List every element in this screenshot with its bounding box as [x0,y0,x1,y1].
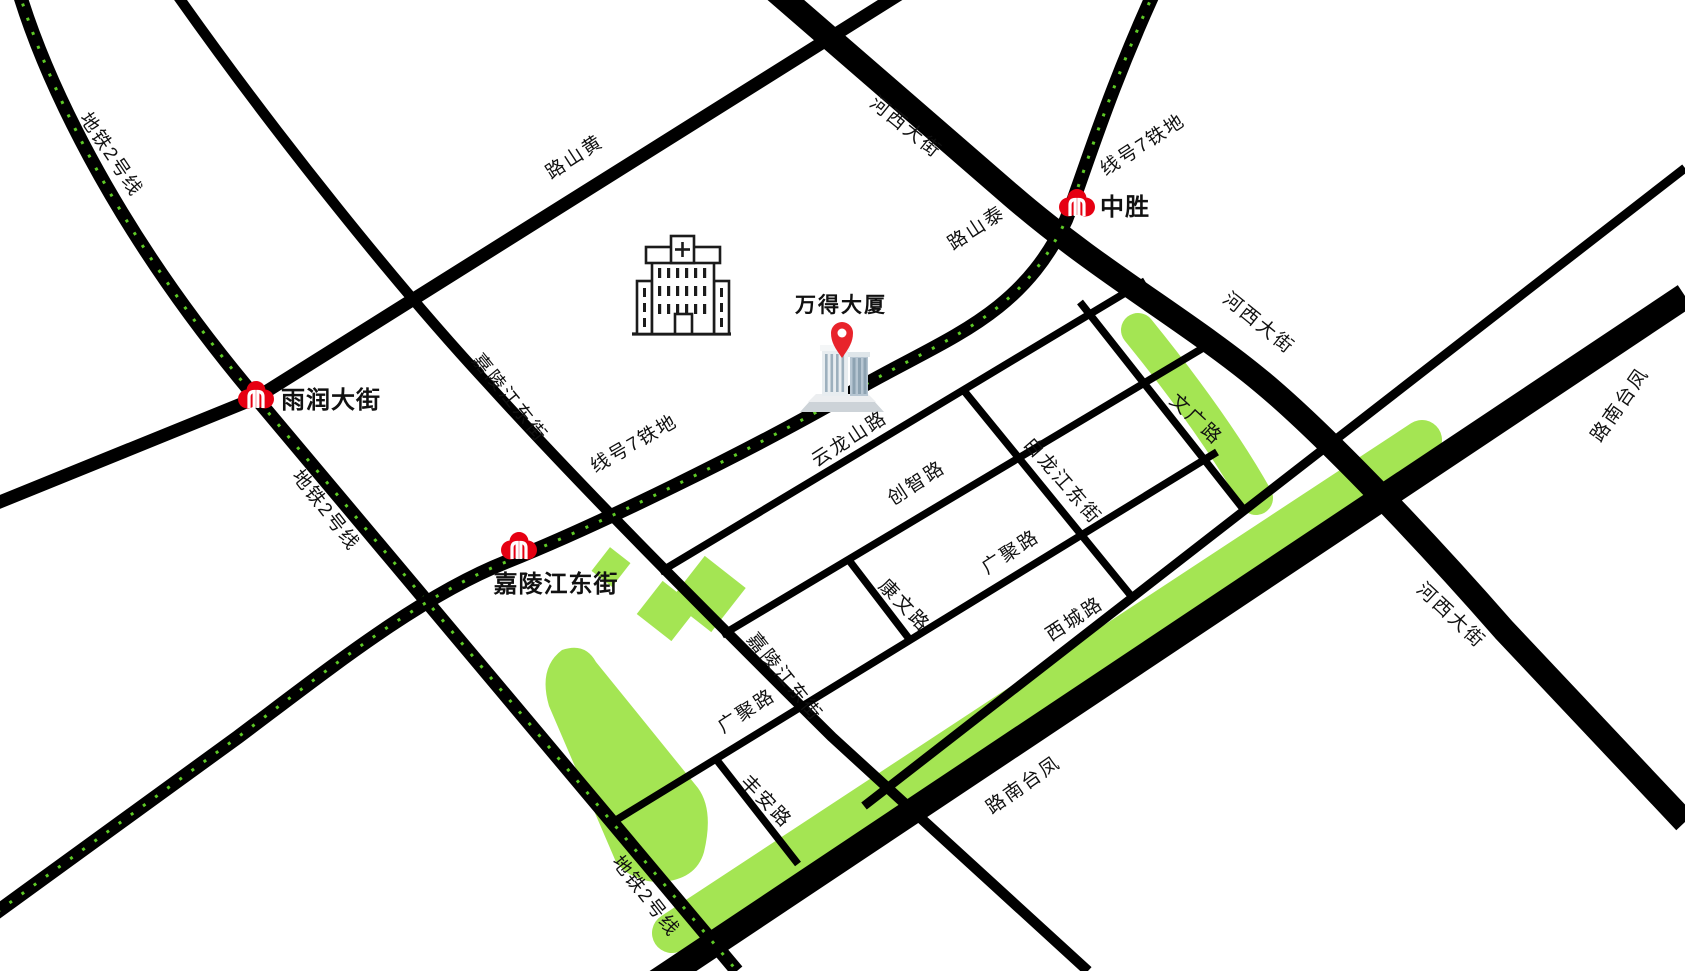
road-label-huangshan: 路山黄 [542,130,608,184]
station-label-zhongsheng: 中胜 [1100,194,1150,221]
station-label-yurun: 雨润大街 [281,386,381,414]
road-label-taishan: 路山泰 [944,201,1010,255]
station-label-jialingjiang: 嘉陵江东街 [494,570,619,598]
road-xicheng [864,168,1685,806]
map-canvas: 万得大厦 中胜 雨润大街 嘉陵江东街 路山黄 路山泰 河西大街 河西大街 河西大… [0,0,1685,971]
road-label-guangju-1: 广聚路 [978,525,1044,579]
station-icon-jialingjiang[interactable] [501,532,537,560]
hospital-icon [632,236,731,334]
metro-label-line7-b: 线号7铁地 [587,410,682,477]
station-icon-zhongsheng[interactable] [1059,189,1095,217]
landmark-label: 万得大厦 [794,293,887,317]
metro-label-line7-a: 线号7铁地 [1096,109,1189,180]
road-label-jialingjiang-1: 嘉陵江东街 [467,350,552,447]
location-map: 万得大厦 中胜 雨润大街 嘉陵江东街 路山黄 路山泰 河西大街 河西大街 河西大… [0,0,1685,971]
road-label-fengtai-2: 路南台凤 [1586,363,1653,446]
